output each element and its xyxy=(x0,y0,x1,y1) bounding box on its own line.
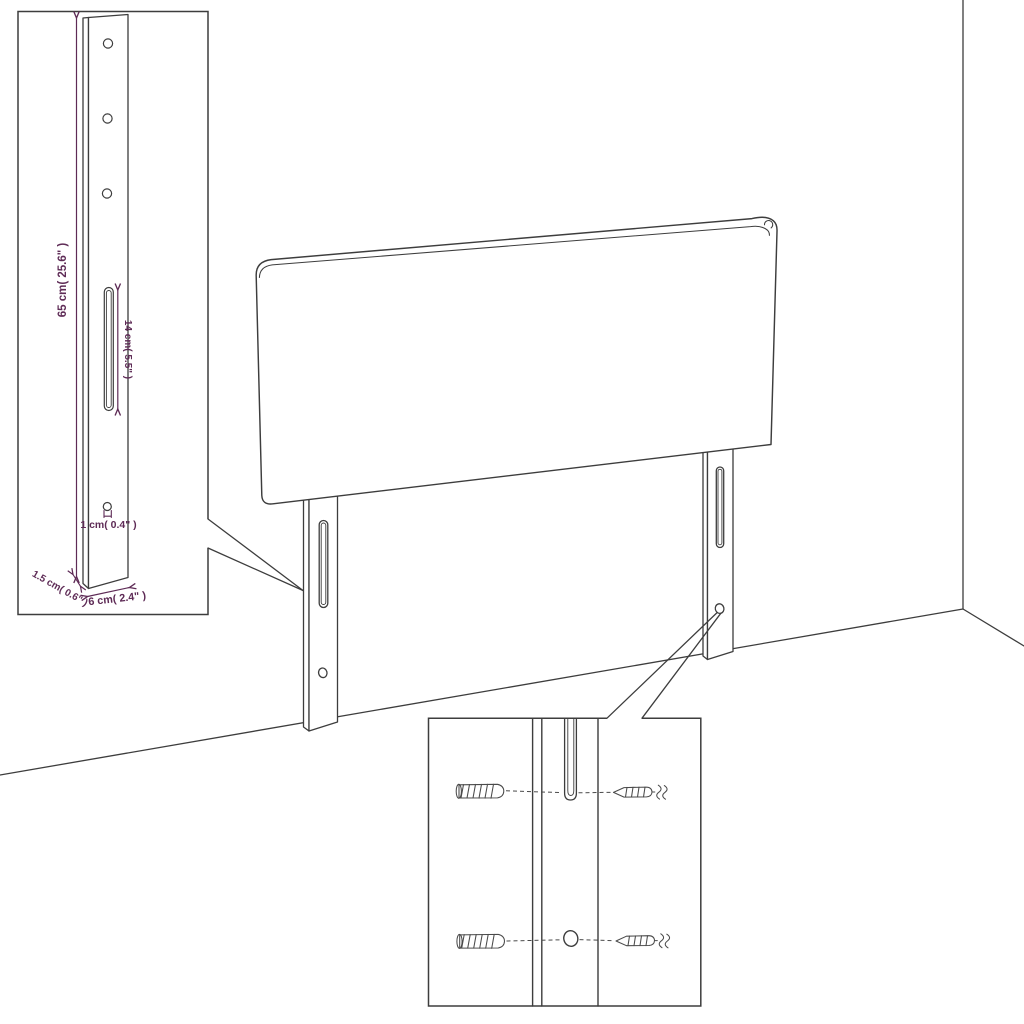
dim-label-height: 65 cm( 25.6" ) xyxy=(57,243,69,318)
callout-line-right xyxy=(642,613,721,718)
callout-line-left xyxy=(607,613,717,719)
right-leg-front-face xyxy=(708,449,734,660)
diagram-canvas: 65 cm( 25.6" ) 14 cm( 5.5" ) 1 cm( 0.4" … xyxy=(0,0,1024,1024)
headboard-panel xyxy=(256,217,777,504)
left-leg-front-face xyxy=(309,493,338,731)
left-leg-side-face xyxy=(304,496,310,732)
hardware-detail-view xyxy=(429,613,721,1007)
dim-label-hole: 1 cm( 0.4" ) xyxy=(80,519,136,531)
right-leg-side-face xyxy=(703,451,708,660)
headboard-assembly-diagram: 65 cm( 25.6" ) 14 cm( 5.5" ) 1 cm( 0.4" … xyxy=(0,0,1024,1024)
headboard-left-leg xyxy=(304,493,338,731)
floor-line-right xyxy=(963,609,1024,646)
bracket-side-face xyxy=(83,18,89,589)
dim-label-slot: 14 cm( 5.5" ) xyxy=(122,320,133,379)
headboard-right-leg xyxy=(703,449,733,660)
